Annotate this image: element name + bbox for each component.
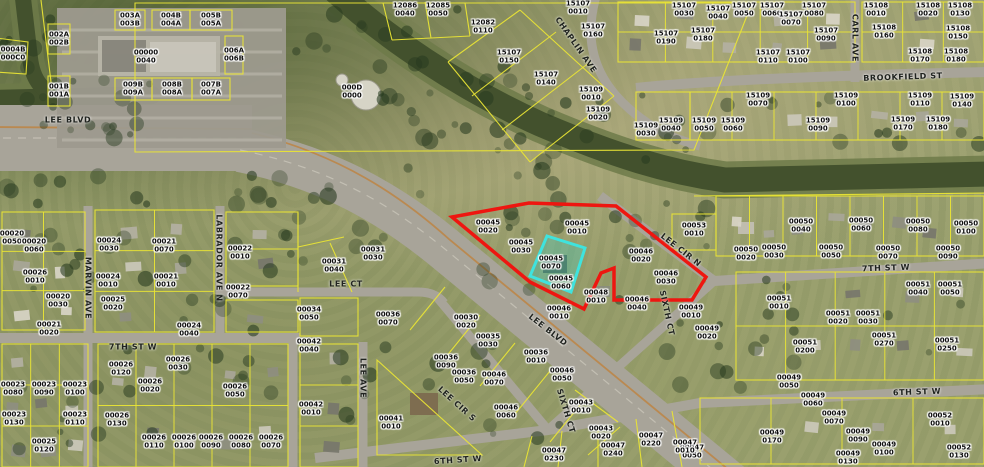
gis-parcel-map[interactable]: 002A002B001B001A003A003B004B004A005B005A…	[0, 0, 984, 467]
map-canvas	[0, 0, 984, 467]
selected-parcel-highlight[interactable]	[530, 236, 585, 292]
